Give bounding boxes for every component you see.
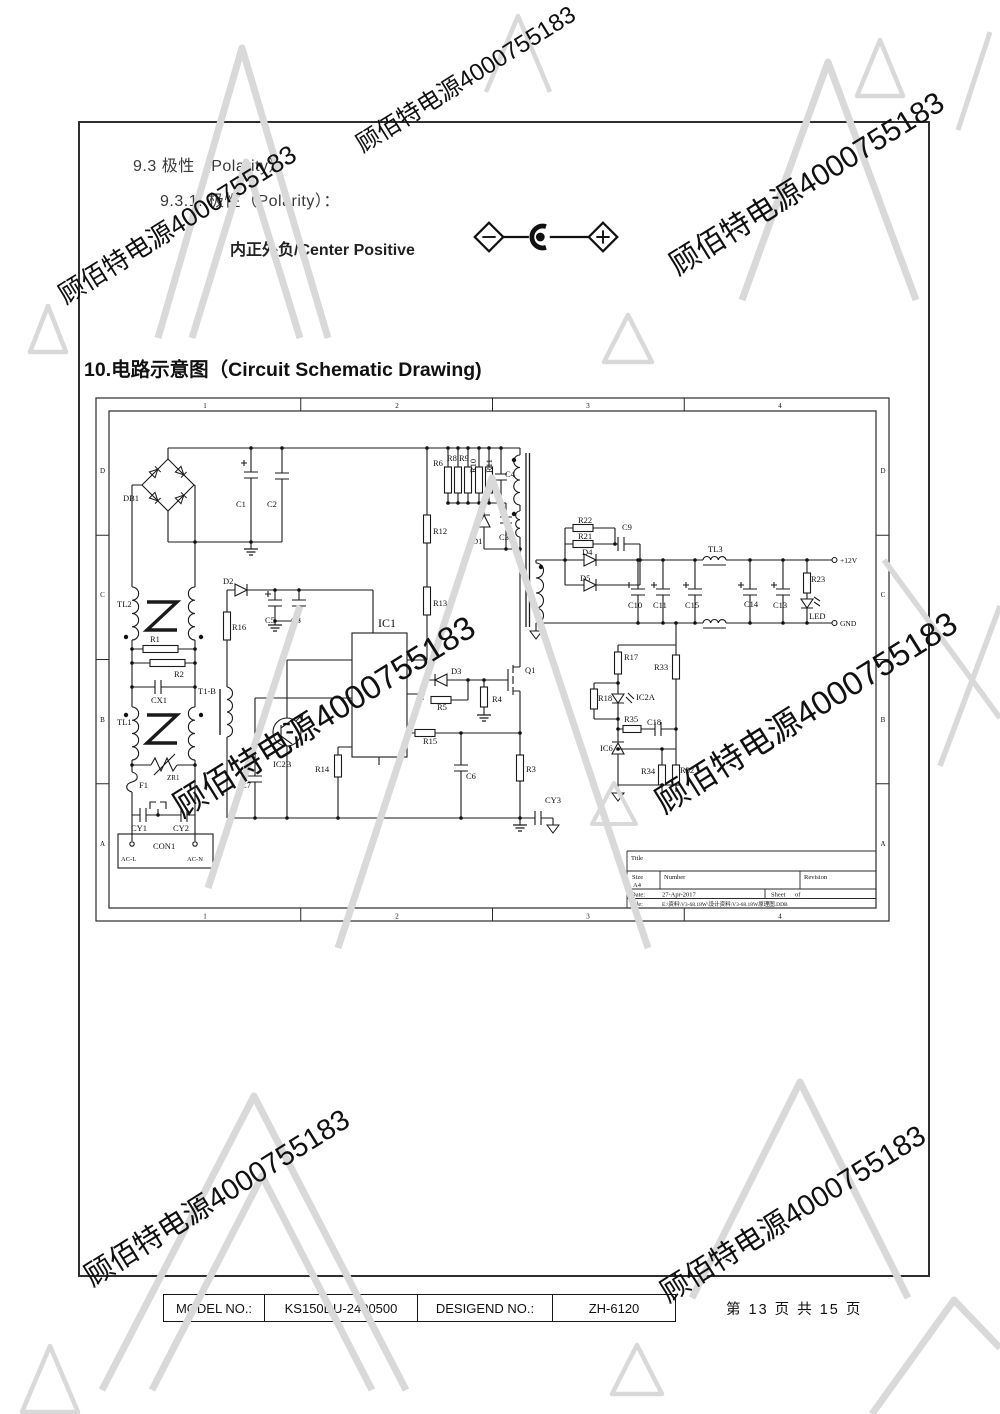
frame-row-label: A — [880, 840, 885, 848]
document-page: 9.3 极性（Polarity） 9.3.1. 极性（Polarity）： 内正… — [0, 0, 1000, 1414]
component-label-con1: CON1 — [153, 841, 175, 851]
component-label-file: File: — [631, 901, 643, 908]
component-label-27-apr-2017: 27-Apr-2017 — [662, 892, 697, 899]
junction-dot — [613, 542, 617, 546]
junction-dot — [466, 501, 470, 505]
junction-dot — [518, 731, 522, 735]
component-label-d3: D3 — [451, 666, 461, 676]
frame-row-label: C — [881, 591, 886, 599]
frame-column-label: 3 — [586, 913, 590, 921]
component-label-r10: R10 — [468, 459, 478, 473]
component-label-r16: R16 — [232, 622, 246, 632]
circuit-schematic: DB1C1C2TL2R1R2CX1TL1ZR1F1CY1CY2CON1AC-LA… — [95, 397, 890, 922]
component-label-title: Title — [631, 855, 643, 862]
phase-dot — [124, 635, 128, 639]
junction-dot — [456, 501, 460, 505]
component-label-f1: F1 — [139, 780, 148, 790]
frame-row-label: A — [100, 840, 105, 848]
junction-dot — [499, 446, 503, 450]
junction-dot — [781, 621, 785, 625]
junction-dot — [285, 816, 289, 820]
junction-dot — [499, 501, 503, 505]
junction-dot — [674, 621, 678, 625]
frame-row-label: D — [880, 467, 885, 475]
component-label-r2: R2 — [174, 669, 184, 679]
junction-dot — [459, 731, 463, 735]
footer-row: MODEL NO.: KS150DU-2400500 DESIGEND NO.:… — [164, 1295, 676, 1322]
junction-dot — [273, 588, 277, 592]
component-label-r11: R11 — [484, 459, 494, 473]
frame-column-label: 4 — [778, 402, 782, 410]
component-label-db1: DB1 — [123, 493, 139, 503]
junction-dot — [280, 446, 284, 450]
junction-dot — [193, 647, 197, 651]
junction-dot — [193, 763, 197, 767]
component-label-tl1: TL1 — [117, 717, 132, 727]
component-label-c11: C11 — [653, 600, 667, 610]
component-label-tl3: TL3 — [708, 544, 723, 554]
junction-dot — [616, 727, 620, 731]
component-label-ac-n: AC-N — [187, 856, 203, 863]
phase-dot — [199, 635, 203, 639]
polarity-symbol — [470, 213, 622, 261]
center-positive-label: 内正外负/Center Positive — [230, 236, 415, 260]
junction-dot — [563, 558, 567, 562]
component-label-d2: D2 — [223, 576, 233, 586]
component-label-c15: C15 — [685, 600, 699, 610]
junction-dot — [466, 446, 470, 450]
frame-row-label: B — [100, 716, 105, 724]
frame-row-label: C — [100, 591, 105, 599]
component-label-ev3-6818wv3-6818wddb: E:\资料\V3-68.18W\设计资料\V3-68.18W原理图.DDB — [662, 900, 788, 908]
component-label-d5: D5 — [580, 573, 590, 583]
junction-dot — [693, 621, 697, 625]
component-label-r4: R4 — [492, 694, 503, 704]
component-label-cx1: CX1 — [151, 695, 167, 705]
junction-dot — [156, 813, 160, 817]
component-label-r14: R14 — [315, 764, 330, 774]
component-label-cy2: CY2 — [173, 823, 189, 833]
component-label-ic6: IC6 — [600, 743, 613, 753]
component-label-c14: C14 — [744, 599, 759, 609]
junction-dot — [193, 661, 197, 665]
component-label-c9: C9 — [622, 522, 632, 532]
minus-diamond-icon — [475, 223, 504, 252]
phase-dot — [512, 458, 516, 462]
component-label-gnd: GND — [840, 619, 857, 628]
page-number: 第 13 页 共 15 页 — [726, 1298, 862, 1319]
component-label-ac-l: AC-L — [121, 856, 136, 863]
junction-dot — [504, 547, 508, 551]
frame-row-label: B — [881, 716, 886, 724]
diode-and-ground-symbols — [149, 466, 624, 833]
junction-dot — [518, 547, 522, 551]
junction-dot — [748, 621, 752, 625]
section-10-heading: 10.电路示意图（Circuit Schematic Drawing) — [84, 353, 482, 382]
component-label-r17: R17 — [624, 652, 638, 662]
footer-table: MODEL NO.: KS150DU-2400500 DESIGEND NO.:… — [163, 1294, 676, 1322]
junction-dot — [693, 558, 697, 562]
frame-column-label: 3 — [586, 402, 590, 410]
frame-column-label: 4 — [778, 913, 782, 921]
junction-dot — [446, 446, 450, 450]
junction-dot — [130, 763, 134, 767]
component-label-c8: C8 — [291, 615, 301, 625]
junction-dot — [130, 685, 134, 689]
component-label-d4: D4 — [582, 547, 593, 557]
plus-diamond-icon — [589, 223, 618, 252]
junction-dot — [130, 647, 134, 651]
component-label-r32: R32 — [680, 765, 694, 775]
component-label-d1: D1 — [472, 536, 482, 546]
junction-dot — [477, 501, 481, 505]
component-label-c2: C2 — [267, 499, 277, 509]
junction-dot — [661, 621, 665, 625]
design-no-value: ZH-6120 — [553, 1295, 676, 1322]
frame-row-label: D — [100, 467, 105, 475]
junction-dot — [459, 816, 463, 820]
phase-dot — [512, 512, 516, 516]
component-label-t1-b: T1-B — [198, 686, 216, 696]
junction-dot — [425, 446, 429, 450]
junction-dot — [660, 783, 664, 787]
component-label-c10: C10 — [628, 600, 642, 610]
phase-dot — [539, 565, 543, 569]
component-label-+12v: +12V — [840, 556, 858, 565]
component-label-r3: R3 — [526, 764, 536, 774]
component-label-ic2b: IC2B — [273, 759, 292, 769]
component-label-cy3: CY3 — [545, 795, 561, 805]
model-no-label: MODEL NO.: — [164, 1295, 265, 1322]
frame-column-label: 2 — [395, 913, 399, 921]
junction-dot — [636, 558, 640, 562]
component-label-c3: C3 — [499, 532, 509, 542]
junction-dot — [616, 747, 620, 751]
junction-dot — [781, 558, 785, 562]
component-label-r21: R21 — [578, 531, 592, 541]
component-label-r12: R12 — [433, 526, 447, 536]
junction-dot — [193, 685, 197, 689]
frame-column-label: 2 — [395, 402, 399, 410]
junction-dot — [253, 816, 257, 820]
junction-dot — [487, 501, 491, 505]
schematic-wires — [118, 448, 837, 868]
component-label-r35: R35 — [624, 714, 638, 724]
junction-dot — [466, 678, 470, 682]
junction-dot — [487, 446, 491, 450]
junction-dot — [130, 661, 134, 665]
component-label-r23: R23 — [811, 574, 825, 584]
component-label-c4: C4 — [505, 469, 516, 479]
junction-dot — [446, 501, 450, 505]
component-label-r33: R33 — [654, 662, 668, 672]
frame-column-label: 1 — [203, 402, 207, 410]
component-label-c5: C5 — [265, 615, 275, 625]
component-label-c1: C1 — [236, 499, 246, 509]
component-label-of: of — [795, 892, 801, 899]
component-label-c13: C13 — [773, 600, 787, 610]
component-label-r15: R15 — [423, 736, 437, 746]
junction-dot — [636, 621, 640, 625]
junction-dot — [518, 816, 522, 820]
center-contact-icon — [532, 226, 546, 248]
model-no-value: KS150DU-2400500 — [265, 1295, 418, 1322]
section-9-3-heading: 9.3 极性（Polarity） — [133, 152, 285, 176]
junction-dot — [482, 678, 486, 682]
junction-dot — [616, 681, 620, 685]
junction-dot — [748, 558, 752, 562]
component-label-cy1: CY1 — [131, 823, 147, 833]
junction-dot — [477, 446, 481, 450]
component-label-r6: R6 — [433, 458, 443, 468]
component-label-a4: A4 — [633, 882, 642, 889]
component-label-ic2a: IC2A — [636, 692, 656, 702]
junction-dot — [805, 558, 809, 562]
junction-dot — [336, 816, 340, 820]
component-label-r34: R34 — [641, 766, 656, 776]
component-label-number: Number — [664, 874, 686, 881]
design-no-label: DESIGEND NO.: — [418, 1295, 553, 1322]
component-label-ic1: IC1 — [378, 616, 396, 630]
component-label-tl2: TL2 — [117, 599, 132, 609]
component-label-r5: R5 — [437, 702, 447, 712]
component-label-c7: C7 — [241, 780, 251, 790]
component-label-q1: Q1 — [525, 665, 535, 675]
junction-dot — [249, 540, 253, 544]
component-label-sheet: Sheet — [771, 892, 786, 899]
component-label-c6: C6 — [466, 771, 476, 781]
section-9-3-1-heading: 9.3.1. 极性（Polarity）： — [160, 187, 340, 211]
component-label-size: Size — [632, 874, 643, 881]
component-label-led: LED — [809, 611, 826, 621]
component-label-r18: R18 — [598, 693, 612, 703]
junction-dot — [805, 621, 809, 625]
component-label-zr1: ZR1 — [167, 774, 180, 782]
junction-dot — [421, 692, 425, 696]
junction-dot — [482, 501, 486, 505]
junction-dot — [660, 747, 664, 751]
junction-dot — [674, 727, 678, 731]
component-label-r22: R22 — [578, 515, 592, 525]
junction-dot — [297, 588, 301, 592]
junction-dot — [249, 446, 253, 450]
component-label-r13: R13 — [433, 598, 447, 608]
junction-dot — [456, 446, 460, 450]
component-label-r1: R1 — [150, 634, 160, 644]
component-label-r8: R8 — [447, 453, 457, 463]
frame-column-label: 1 — [203, 913, 207, 921]
junction-dot — [616, 717, 620, 721]
component-label-revision: Revision — [804, 874, 828, 881]
junction-dot — [661, 558, 665, 562]
component-label-c18: C18 — [647, 717, 661, 727]
component-label-date: Date: — [631, 892, 645, 899]
junction-dot — [193, 540, 197, 544]
phase-dot — [199, 713, 203, 717]
